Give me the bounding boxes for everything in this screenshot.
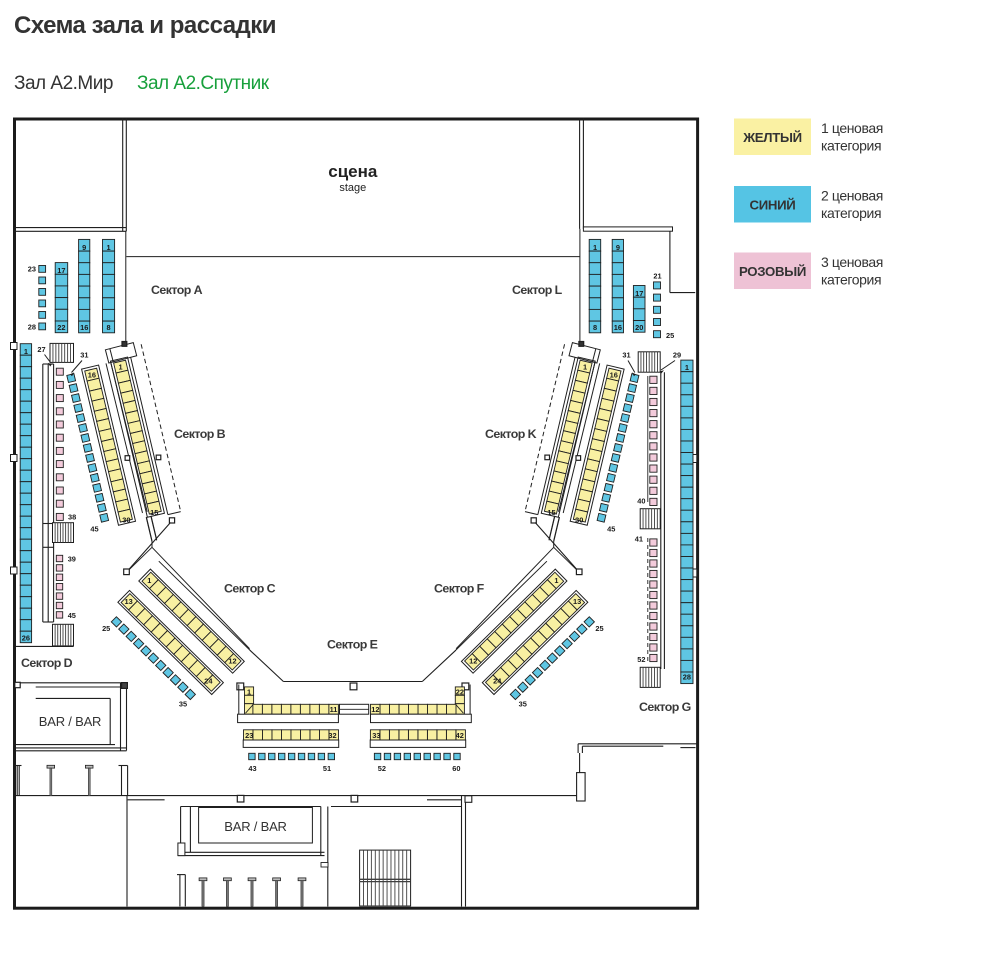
svg-text:24: 24 (493, 677, 502, 686)
svg-text:9: 9 (616, 243, 620, 252)
svg-text:35: 35 (179, 700, 187, 709)
svg-text:1: 1 (106, 243, 110, 252)
svg-text:20: 20 (635, 323, 643, 332)
svg-text:BAR / BAR: BAR / BAR (39, 714, 102, 729)
svg-text:Сектор А: Сектор А (151, 283, 203, 297)
svg-text:52: 52 (378, 764, 386, 773)
svg-text:45: 45 (90, 525, 98, 534)
svg-text:Схема зала и рассадки: Схема зала и рассадки (14, 12, 276, 39)
svg-text:27: 27 (37, 345, 45, 354)
svg-text:1: 1 (583, 363, 587, 372)
svg-text:Сектор B: Сектор B (174, 427, 226, 441)
svg-text:16: 16 (610, 370, 618, 379)
svg-text:3 ценовая: 3 ценовая (821, 254, 883, 270)
svg-text:31: 31 (80, 351, 88, 360)
svg-text:35: 35 (519, 700, 527, 709)
svg-text:21: 21 (653, 272, 661, 281)
svg-text:43: 43 (248, 764, 256, 773)
svg-text:38: 38 (68, 513, 76, 522)
svg-text:stage: stage (339, 182, 366, 194)
svg-text:52: 52 (637, 655, 645, 664)
svg-text:24: 24 (204, 677, 213, 686)
svg-text:1: 1 (554, 576, 558, 585)
svg-text:1: 1 (685, 363, 689, 372)
svg-text:сцена: сцена (328, 162, 378, 181)
svg-text:Сектор K: Сектор K (485, 427, 537, 441)
svg-text:31: 31 (622, 351, 630, 360)
svg-text:26: 26 (22, 633, 30, 642)
svg-text:28: 28 (28, 322, 36, 331)
svg-text:23: 23 (245, 731, 253, 740)
svg-text:17: 17 (635, 289, 643, 298)
svg-text:45: 45 (607, 525, 615, 534)
svg-text:40: 40 (637, 497, 645, 506)
svg-text:Сектор C: Сектор C (224, 582, 276, 596)
svg-text:13: 13 (573, 597, 581, 606)
svg-text:33: 33 (372, 731, 380, 740)
svg-text:12: 12 (371, 705, 379, 714)
svg-text:Сектор D: Сектор D (21, 656, 73, 670)
svg-text:1: 1 (119, 363, 123, 372)
svg-text:BAR / BAR: BAR / BAR (224, 819, 287, 834)
svg-text:39: 39 (68, 555, 76, 564)
svg-text:Сектор F: Сектор F (434, 582, 485, 596)
svg-text:25: 25 (666, 331, 674, 340)
svg-text:2 ценовая: 2 ценовая (821, 188, 883, 204)
svg-text:Сектор L: Сектор L (512, 283, 563, 297)
svg-text:1: 1 (247, 688, 251, 697)
svg-text:16: 16 (80, 323, 88, 332)
svg-text:ЖЕЛТЫЙ: ЖЕЛТЫЙ (742, 130, 802, 145)
svg-text:51: 51 (323, 764, 331, 773)
svg-text:категория: категория (821, 138, 881, 154)
svg-text:41: 41 (635, 535, 643, 544)
svg-text:15: 15 (150, 508, 158, 517)
svg-text:категория: категория (821, 272, 881, 288)
svg-text:23: 23 (28, 265, 36, 274)
svg-text:25: 25 (102, 624, 110, 633)
svg-text:15: 15 (547, 508, 555, 517)
svg-text:12: 12 (228, 657, 236, 666)
svg-text:Сектор E: Сектор E (327, 638, 378, 652)
svg-text:22: 22 (57, 323, 65, 332)
svg-text:1: 1 (147, 576, 151, 585)
svg-text:8: 8 (106, 323, 110, 332)
svg-text:28: 28 (683, 673, 691, 682)
svg-text:30: 30 (575, 516, 583, 525)
svg-text:1: 1 (593, 243, 597, 252)
svg-text:45: 45 (68, 611, 76, 620)
svg-text:1 ценовая: 1 ценовая (821, 120, 883, 136)
svg-text:12: 12 (469, 657, 477, 666)
svg-text:22: 22 (456, 688, 464, 697)
svg-text:РОЗОВЫЙ: РОЗОВЫЙ (739, 264, 806, 279)
svg-text:32: 32 (328, 731, 336, 740)
svg-text:категория: категория (821, 205, 881, 221)
svg-text:8: 8 (593, 323, 597, 332)
svg-text:29: 29 (673, 351, 681, 360)
svg-text:Зал А2.Спутник: Зал А2.Спутник (137, 73, 270, 94)
svg-text:9: 9 (82, 243, 86, 252)
svg-text:17: 17 (57, 266, 65, 275)
svg-text:16: 16 (88, 370, 96, 379)
svg-text:25: 25 (595, 624, 603, 633)
svg-text:30: 30 (122, 516, 130, 525)
svg-text:1: 1 (24, 347, 28, 356)
svg-text:11: 11 (330, 705, 338, 714)
svg-text:СИНИЙ: СИНИЙ (750, 198, 796, 213)
svg-text:16: 16 (614, 323, 622, 332)
svg-text:42: 42 (456, 731, 464, 740)
svg-text:60: 60 (452, 764, 460, 773)
svg-text:13: 13 (124, 597, 132, 606)
svg-text:Зал А2.Мир: Зал А2.Мир (14, 73, 113, 94)
svg-text:Сектор G: Сектор G (639, 700, 691, 714)
